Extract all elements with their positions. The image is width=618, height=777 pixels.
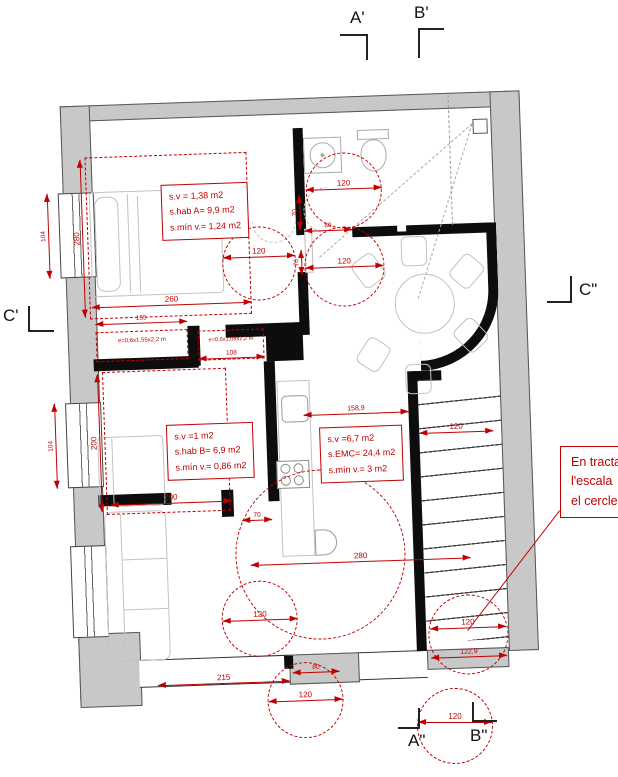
section-marker-a-doubleprime: A" (408, 731, 425, 751)
dim-living-length: 158,9 (304, 411, 409, 416)
dim-closetA-width: 155 (95, 321, 187, 325)
label-box-living-kitchen: s.v =6,7 m2 s.EMC= 24,4 m2 s.mín v.= 3 m… (319, 425, 404, 484)
section-bracket-a-prime (340, 34, 368, 60)
section-bracket-c-prime (28, 306, 54, 332)
dining-chair-4 (405, 364, 432, 395)
dining-chair-5 (354, 335, 392, 374)
wall-dining-north-notch (397, 225, 406, 231)
dim-bath-offset2: 70 (301, 250, 303, 275)
floor-plan: s.v = 1,38 m2 s.hab A= 9,9 m2 s.mín v.= … (60, 90, 551, 706)
section-bracket-c-doubleprime (547, 276, 572, 303)
living-smin: s.mín v.= 3 m2 (328, 460, 396, 478)
living-semc: s.EMC= 24,4 m2 (328, 445, 396, 463)
note-line-3: el cercle (571, 492, 618, 511)
window-living (70, 545, 109, 638)
wall-top (60, 90, 520, 122)
floor-plan-page: { "markers": { "top_left": "A'", "top_ri… (0, 0, 618, 777)
section-bracket-a-doubleprime (398, 708, 420, 729)
section-marker-b-doubleprime: B" (470, 726, 487, 746)
dim-window2-height: 104 (54, 404, 58, 489)
section-bracket-b-prime (418, 28, 444, 58)
dining-chair-1 (400, 236, 427, 267)
column-marker (472, 118, 488, 134)
dim-section-circle: 120 (418, 722, 492, 723)
section-marker-c-prime: C' (3, 306, 19, 326)
toilet-tank (357, 129, 389, 140)
note-line-1: En tracta (571, 453, 618, 472)
section-marker-c-doubleprime: C" (579, 280, 597, 300)
wall-closetB-block (265, 325, 303, 361)
bedroom-b-smin: s.mín v.= 0,86 m2 (175, 458, 247, 476)
section-marker-b-prime: B' (414, 3, 429, 23)
section-bracket-b-doubleprime (472, 702, 497, 722)
label-box-bedroom-a: s.v = 1,38 m2 s.hab A= 9,9 m2 s.mín v.= … (160, 182, 249, 241)
note-box: En tracta l'escala el cercle (560, 446, 618, 518)
label-box-bedroom-b: s.v =1 m2 s.hab B= 6,9 m2 s.mín v.= 0,86… (166, 422, 255, 481)
bedroom-a-smin: s.mín v.= 1,24 m2 (170, 218, 242, 236)
area-box-closet-a (96, 329, 189, 362)
note-line-2: l'escala (571, 472, 618, 491)
sofa (104, 510, 171, 662)
section-marker-a-prime: A' (350, 8, 365, 28)
dim-window1-height: 104 (47, 194, 51, 279)
axis-dashdot-line (448, 95, 454, 225)
